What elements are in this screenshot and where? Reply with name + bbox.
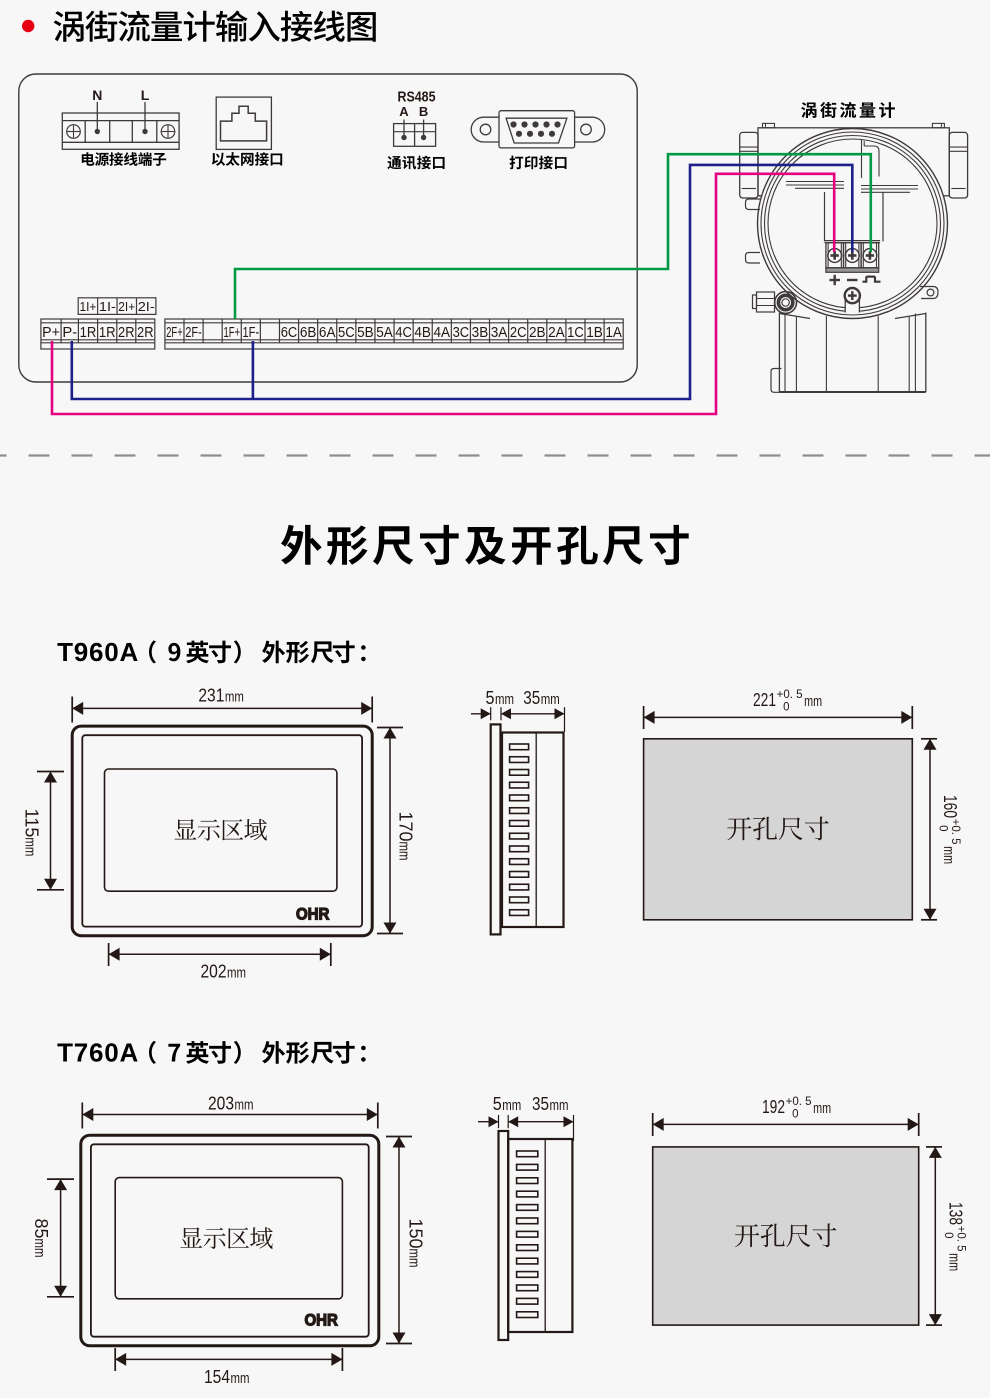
svg-text:4C: 4C (395, 325, 412, 341)
svg-text:0: 0 (792, 1109, 798, 1121)
svg-text:115mm: 115mm (22, 809, 42, 857)
svg-text:160: 160 (940, 795, 961, 818)
svg-text:mm: mm (495, 691, 514, 708)
svg-text:mm: mm (813, 1101, 831, 1117)
svg-text:0: 0 (942, 1232, 954, 1238)
svg-text:6C: 6C (281, 325, 298, 341)
svg-text:2R: 2R (137, 325, 154, 341)
svg-text:6A: 6A (319, 325, 336, 341)
svg-text:1I-: 1I- (99, 299, 116, 314)
svg-text:B: B (419, 104, 428, 119)
svg-text:202: 202 (201, 962, 227, 982)
svg-text:1C: 1C (567, 325, 584, 341)
svg-text:0: 0 (937, 825, 949, 831)
svg-text:+0. 5: +0. 5 (955, 1226, 967, 1252)
svg-text:1R: 1R (80, 325, 97, 341)
svg-text:A: A (399, 104, 409, 119)
svg-text:5C: 5C (338, 325, 355, 341)
svg-text:5A: 5A (376, 325, 393, 341)
svg-text:P+: P+ (42, 325, 60, 341)
svg-text:192: 192 (762, 1096, 785, 1117)
svg-text:+0. 5: +0. 5 (949, 819, 961, 845)
svg-text:+0. 5: +0. 5 (786, 1096, 812, 1108)
svg-text:2I-: 2I- (138, 299, 155, 314)
svg-text:N: N (92, 87, 102, 103)
svg-text:0: 0 (783, 702, 789, 714)
svg-text:mm: mm (231, 1370, 250, 1387)
svg-text:2F+: 2F+ (166, 325, 183, 341)
svg-text:85mm: 85mm (31, 1218, 51, 1257)
svg-text:2C: 2C (510, 325, 527, 341)
svg-text:L: L (141, 87, 150, 103)
svg-text:6B: 6B (300, 325, 317, 341)
svg-text:P-: P- (62, 325, 77, 341)
svg-text:mm: mm (502, 1097, 521, 1114)
svg-text:mm: mm (235, 1097, 254, 1114)
svg-text:154: 154 (204, 1367, 230, 1387)
svg-text:T760A: T760A (57, 1038, 139, 1068)
svg-text:5: 5 (486, 688, 495, 708)
svg-text:1B: 1B (586, 325, 603, 341)
svg-text:1I+: 1I+ (79, 299, 96, 314)
svg-text:OHR: OHR (304, 1311, 338, 1330)
svg-text:221: 221 (753, 689, 776, 710)
svg-text:4B: 4B (414, 325, 431, 341)
svg-text:35: 35 (523, 688, 540, 708)
svg-text:4A: 4A (433, 325, 450, 341)
svg-text:35: 35 (532, 1094, 549, 1114)
svg-text:3B: 3B (472, 325, 489, 341)
svg-text:2A: 2A (548, 325, 565, 341)
svg-text:T960A: T960A (57, 637, 139, 667)
svg-text:mm: mm (227, 965, 246, 982)
svg-text:mm: mm (946, 1253, 962, 1271)
svg-text:170mm: 170mm (396, 811, 416, 860)
svg-text:150mm: 150mm (406, 1218, 426, 1267)
svg-text:+0. 5: +0. 5 (777, 689, 803, 701)
svg-text:1R: 1R (99, 325, 116, 341)
svg-text:OHR: OHR (296, 904, 330, 923)
svg-text:2I+: 2I+ (118, 299, 135, 314)
svg-text:2B: 2B (529, 325, 546, 341)
svg-text:203: 203 (208, 1094, 234, 1114)
svg-text:5B: 5B (357, 325, 374, 341)
svg-text:mm: mm (804, 694, 822, 710)
svg-text:3A: 3A (491, 325, 508, 341)
svg-text:3C: 3C (453, 325, 470, 341)
svg-text:mm: mm (225, 689, 244, 706)
svg-text:1F-: 1F- (243, 325, 260, 341)
svg-text:138: 138 (946, 1202, 967, 1225)
svg-text:231: 231 (198, 686, 224, 706)
svg-text:mm: mm (550, 1097, 569, 1114)
svg-text:mm: mm (940, 846, 956, 864)
svg-text:2R: 2R (118, 325, 135, 341)
svg-text:5: 5 (493, 1094, 502, 1114)
svg-text:mm: mm (541, 691, 560, 708)
svg-text:2F-: 2F- (185, 325, 202, 341)
svg-text:1A: 1A (605, 325, 622, 341)
svg-text:1F+: 1F+ (223, 325, 240, 341)
